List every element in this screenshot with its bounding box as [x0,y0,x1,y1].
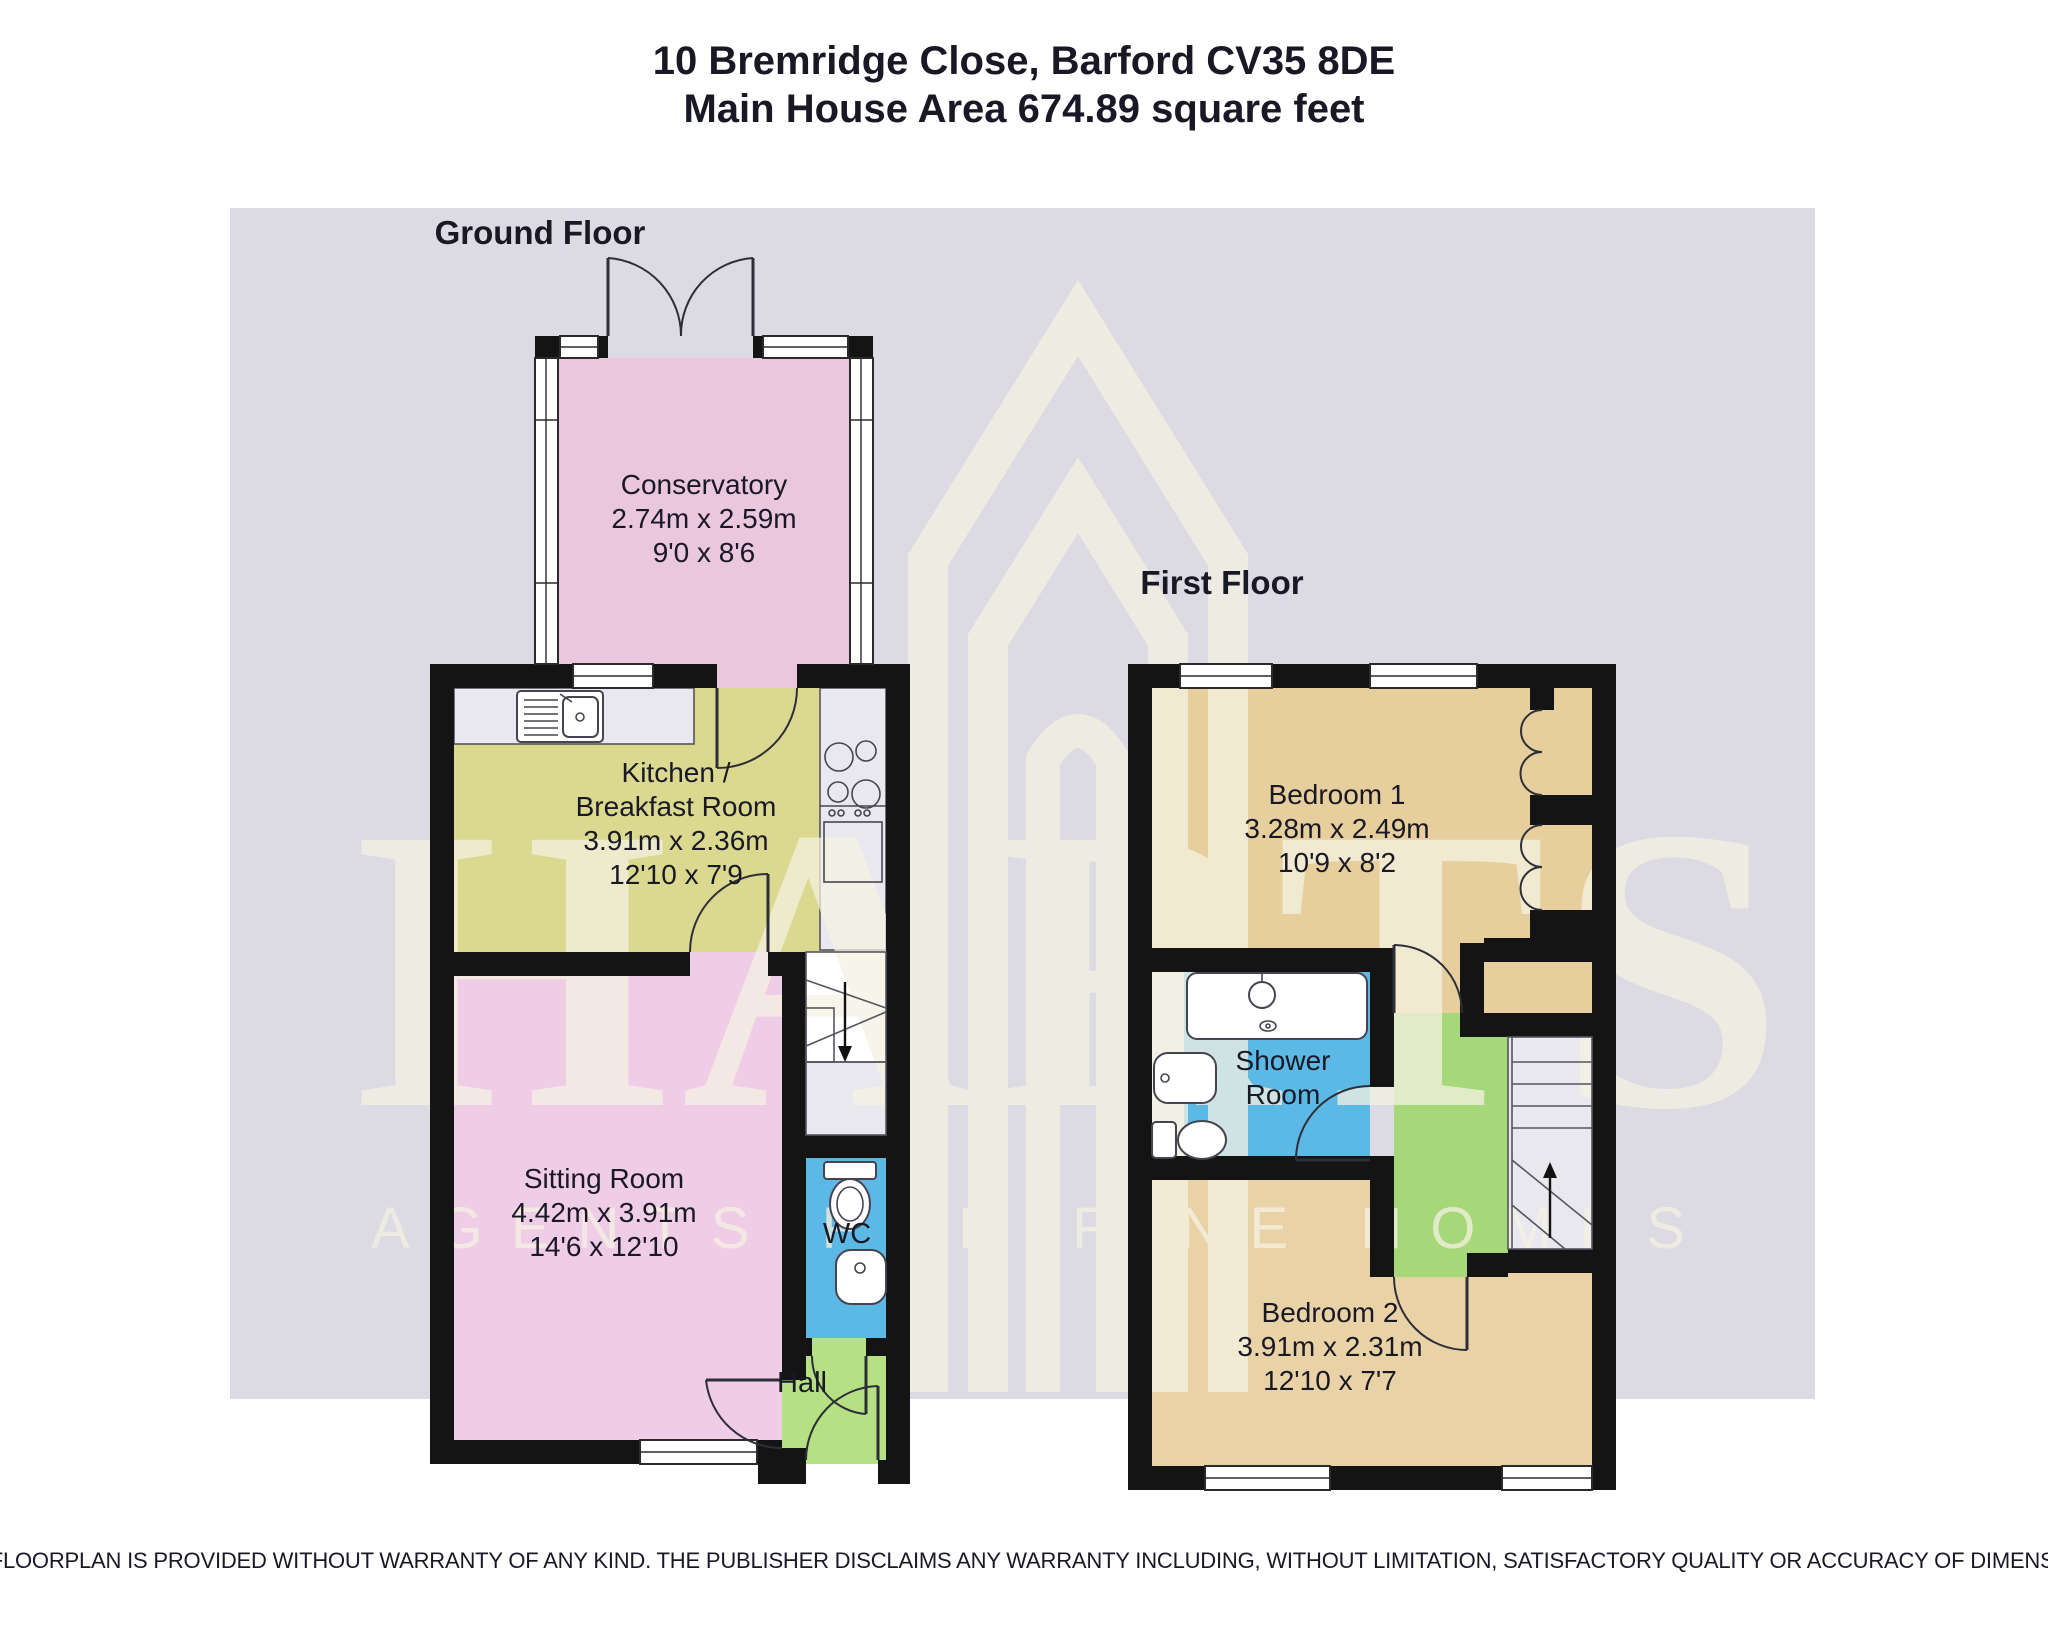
shower-basin [1154,1053,1216,1103]
sink-bowl [563,697,598,737]
bedroom2-imperial: 12'10 x 7'7 [1263,1365,1397,1396]
kitchen-imperial: 12'10 x 7'9 [609,859,743,890]
conservatory-imperial: 9'0 x 8'6 [653,537,756,568]
first-floor-label: First Floor [1140,564,1303,601]
ground-floor-label: Ground Floor [435,214,646,251]
page-title-area: Main House Area 674.89 square feet [683,87,1364,131]
shower-head [1249,982,1275,1008]
wc-basin [836,1250,886,1304]
conservatory-metric: 2.74m x 2.59m [611,503,796,534]
page-title-address: 10 Bremridge Close, Barford CV35 8DE [653,39,1395,83]
kitchen-metric: 3.91m x 2.36m [583,825,768,856]
shower-toilet [1178,1121,1226,1159]
floorplan-page: HARTS AGENTS FOR FINE HOMES [0,0,2048,1636]
bedroom1-metric: 3.28m x 2.49m [1244,813,1429,844]
shower-tray [1187,973,1367,1039]
shower-name2: Room [1246,1079,1321,1110]
wc-cistern [824,1162,876,1179]
bedroom1-imperial: 10'9 x 8'2 [1278,847,1396,878]
sitting-metric: 4.42m x 3.91m [511,1197,696,1228]
disclaimer-text: THIS FLOORPLAN IS PROVIDED WITHOUT WARRA… [0,1548,2048,1573]
bedroom2-metric: 3.91m x 2.31m [1237,1331,1422,1362]
bedroom2-name: Bedroom 2 [1262,1297,1399,1328]
kitchen-name2: Breakfast Room [576,791,777,822]
shower-name: Shower [1236,1045,1331,1076]
hall-name: Hall [777,1367,827,1399]
conservatory-name: Conservatory [621,469,788,500]
wc-name: WC [823,1218,871,1250]
kitchen-name: Kitchen / [622,757,731,788]
conservatory-doorway-floor [717,664,797,688]
sitting-imperial: 14'6 x 12'10 [529,1231,678,1262]
sitting-name: Sitting Room [524,1163,684,1194]
bedroom1-name: Bedroom 1 [1269,779,1406,810]
floorplan-canvas: HARTS AGENTS FOR FINE HOMES [0,0,2048,1636]
shower-toilet-cistern [1152,1122,1176,1158]
